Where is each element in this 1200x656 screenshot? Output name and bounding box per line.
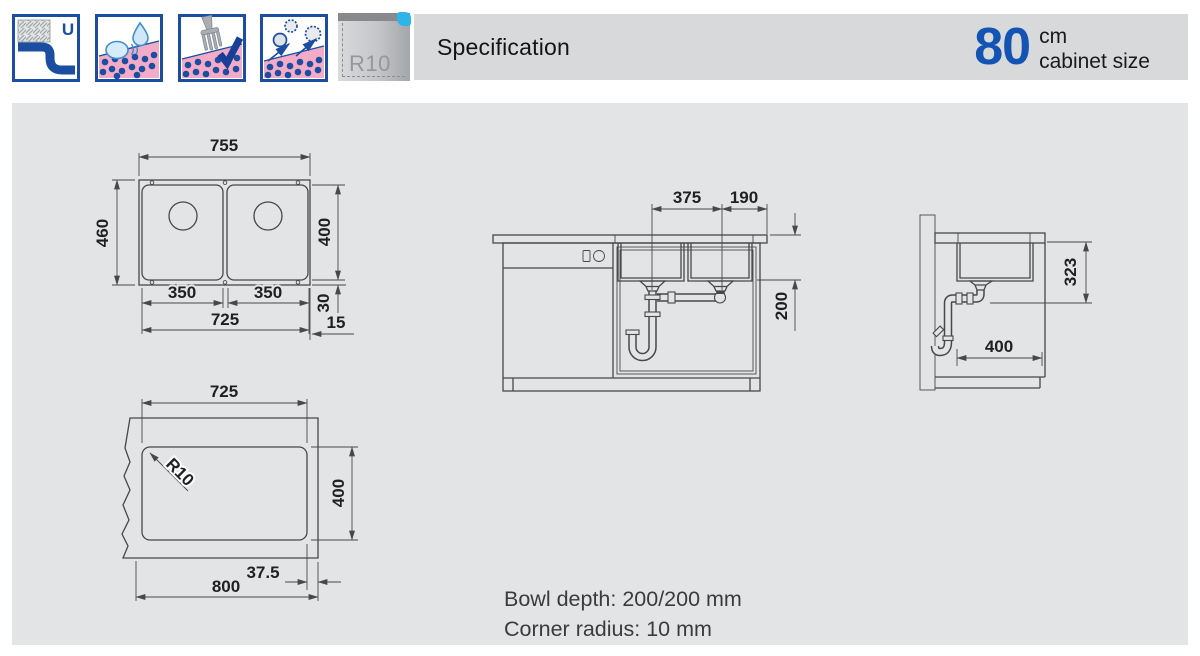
dim-cabinet-width: 800 xyxy=(212,577,240,596)
dim-overall-depth: 460 xyxy=(93,219,112,247)
dim-bowl-depth: 400 xyxy=(315,218,334,246)
dim-bowl-front-back: 400 xyxy=(985,337,1013,356)
wall-section xyxy=(920,215,935,390)
microbe-glyph xyxy=(285,20,297,32)
dirt-repellent-icon xyxy=(260,14,328,82)
bowl-depth-note: Bowl depth: 200/200 mm xyxy=(504,584,742,614)
microbe-glyph xyxy=(306,27,321,42)
cutout-rect xyxy=(142,447,307,540)
dim-bowl1-width: 350 xyxy=(168,283,196,302)
top-view-drawing: 755 460 400 350 350 725 30 15 xyxy=(88,120,368,350)
particle-glyph xyxy=(274,34,287,47)
dim-rim-side: 15 xyxy=(327,313,346,332)
page-title: Specification xyxy=(437,34,570,61)
dim-bowls-span: 725 xyxy=(211,310,239,329)
right-bowl xyxy=(227,185,308,280)
dim-rim-back: 30 xyxy=(314,294,333,313)
dim-bowl2-width: 350 xyxy=(254,283,282,302)
dim-clearance: 323 xyxy=(1061,258,1080,286)
cabinet-size-number: 80 xyxy=(974,20,1030,74)
right-bowl-section xyxy=(688,243,752,281)
front-view-drawing: 375 190 200 xyxy=(485,185,815,400)
bowl-side-section xyxy=(957,243,1033,281)
cabinet-size-label: cabinet size xyxy=(1039,49,1150,74)
dim-cutout-depth: 400 xyxy=(329,479,348,507)
left-bowl-section xyxy=(618,243,684,281)
worktop-side-section xyxy=(935,233,1045,243)
cabinet-size-unit: cm xyxy=(1039,24,1150,49)
dim-cutout-width: 725 xyxy=(210,382,238,401)
cutout-view-drawing: 725 400 R10 37.5 800 xyxy=(90,375,370,615)
cutlery-scratch-resistant-icon xyxy=(178,14,246,82)
dim-drain-to-edge: 190 xyxy=(730,188,758,207)
sink-outline xyxy=(139,180,310,285)
waste-plumbing-side xyxy=(933,281,992,352)
cabinet-outline xyxy=(503,243,760,391)
spec-sheet-page: U xyxy=(0,0,1200,656)
fixing-clips xyxy=(150,181,300,284)
dim-edge-offset: 37.5 xyxy=(246,563,279,582)
r10-badge: R10 xyxy=(338,13,410,81)
water-bead-glyph xyxy=(106,42,128,59)
cabinet-size-caption: cm cabinet size xyxy=(1039,21,1150,74)
dim-overall-width: 755 xyxy=(210,136,238,155)
worktop-slab xyxy=(122,418,318,558)
notes-block: Bowl depth: 200/200 mm Corner radius: 10… xyxy=(504,584,742,644)
dim-corner-radius: R10 xyxy=(162,454,197,489)
r10-corner-radius-marker xyxy=(397,12,411,26)
control-icon-circle xyxy=(594,251,605,262)
side-view-drawing: 323 400 xyxy=(905,200,1105,400)
corner-radius-note: Corner radius: 10 mm xyxy=(504,614,742,644)
waste-plumbing xyxy=(626,281,733,357)
undermount-letter: U xyxy=(62,20,74,39)
dim-drain-spacing: 375 xyxy=(673,188,701,207)
pearl-effect-icon xyxy=(95,14,163,82)
left-bowl xyxy=(142,185,223,280)
right-drain-hole xyxy=(254,202,282,230)
left-drain-hole xyxy=(169,202,197,230)
cabinet-size-block: 80 cm cabinet size xyxy=(974,20,1150,74)
r10-badge-label: R10 xyxy=(349,51,391,77)
control-icon-rect xyxy=(583,251,590,262)
undermount-installation-icon: U xyxy=(12,14,80,82)
dim-bowl-depth-front: 200 xyxy=(772,292,791,320)
worktop-section xyxy=(493,235,767,243)
header-bar: Specification 80 cm cabinet size xyxy=(414,14,1188,80)
